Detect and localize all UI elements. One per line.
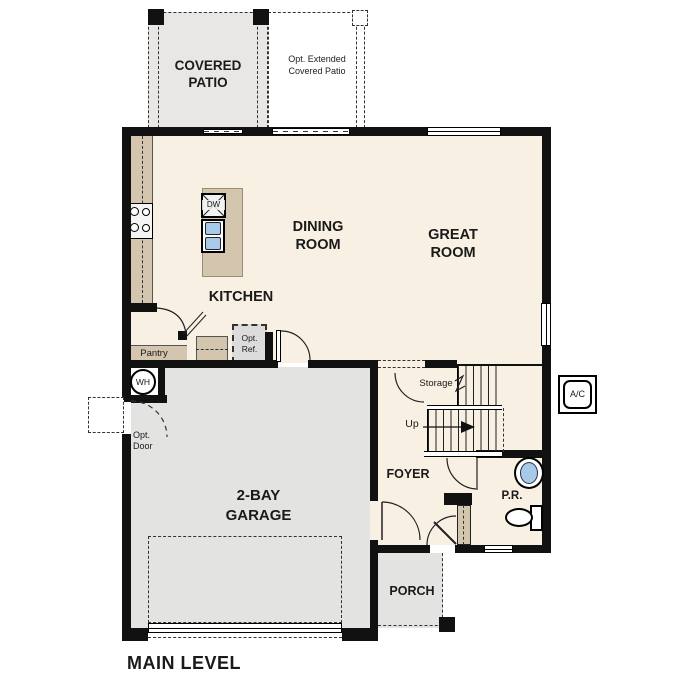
garage-foyer-door-gap — [370, 501, 378, 540]
burner-icon — [142, 224, 150, 232]
water-heater-label: WH — [130, 377, 156, 387]
pr-sink-basin — [520, 462, 538, 484]
pantry-label: Pantry — [132, 348, 176, 359]
stairs-overhead-dashed — [503, 408, 504, 452]
foyer-label: FOYER — [382, 467, 434, 482]
porch-label: PORCH — [383, 584, 441, 599]
dining-room-label: DINING ROOM — [273, 219, 363, 254]
kitchen-label: KITCHEN — [196, 289, 286, 306]
great-room-opening-dashed — [378, 360, 425, 368]
covered-patio-label: COVERED PATIO — [148, 57, 268, 91]
stairs-lower-flight — [427, 410, 502, 451]
main-level-title: MAIN LEVEL — [127, 653, 347, 675]
patio-opt-door-opening — [203, 129, 243, 134]
patio-post-right — [253, 9, 269, 25]
garage-door-dashed — [148, 637, 342, 638]
dishwasher-label: DW — [202, 200, 225, 210]
ac-label: A/C — [563, 389, 592, 400]
storage-label: Storage — [416, 378, 456, 389]
kitchen-garage-door-leaf — [276, 330, 281, 362]
pr-tan-wall — [457, 505, 471, 545]
pr-left-wall-stub — [444, 493, 472, 505]
sink-basin-top — [205, 222, 221, 235]
stairs-bottom-edge — [424, 451, 502, 457]
burner-icon — [130, 207, 139, 216]
opt-extended-patio-label: Opt. Extended Covered Patio — [270, 53, 364, 77]
pantry-wall-stub — [128, 303, 157, 312]
opt-patio-corner-post — [352, 10, 368, 26]
garage-top-wall-right — [308, 360, 378, 368]
patio-sliding-door — [272, 128, 350, 135]
storage-wall-stub — [425, 360, 457, 368]
garage-bottom-wall-left — [122, 628, 148, 641]
toilet-bowl — [505, 508, 533, 527]
great-room-window — [427, 127, 501, 136]
right-wall-window — [541, 303, 551, 346]
pantry-door-jamb — [178, 331, 187, 340]
opt-door-label: Opt. Door — [133, 430, 169, 452]
pr-window — [484, 545, 513, 553]
burner-icon — [142, 208, 150, 216]
great-room-label: GREAT ROOM — [408, 227, 498, 262]
stairs-upper-flight — [457, 366, 502, 407]
sink-basin-bottom — [205, 237, 221, 250]
garage-clearance-dashed — [148, 536, 342, 623]
burner-icon — [130, 223, 139, 232]
opt-ref-label: Opt. Ref. — [232, 333, 267, 354]
pr-tan-wall-dashed — [463, 505, 464, 545]
pr-label: P.R. — [494, 490, 530, 504]
foyer-bottom-wall-left — [378, 545, 430, 553]
porch-post — [439, 617, 455, 632]
wh-nook-bottom-stub — [128, 395, 167, 403]
floor-plan: COVERED PATIO Opt. Extended Covered Pati… — [0, 0, 687, 687]
garage-bottom-wall-right — [342, 628, 378, 641]
wh-nook-right-stub — [158, 368, 165, 397]
counter-block-dashed — [196, 349, 228, 350]
patio-post-left — [148, 9, 164, 25]
up-label: Up — [399, 418, 425, 431]
porch-bottom-dashed — [378, 625, 443, 626]
garage-label: 2-BAY GARAGE — [196, 486, 321, 526]
opt-door-dashed-box — [88, 397, 124, 433]
garage-top-wall-left — [128, 360, 278, 368]
garage-door — [148, 623, 342, 633]
